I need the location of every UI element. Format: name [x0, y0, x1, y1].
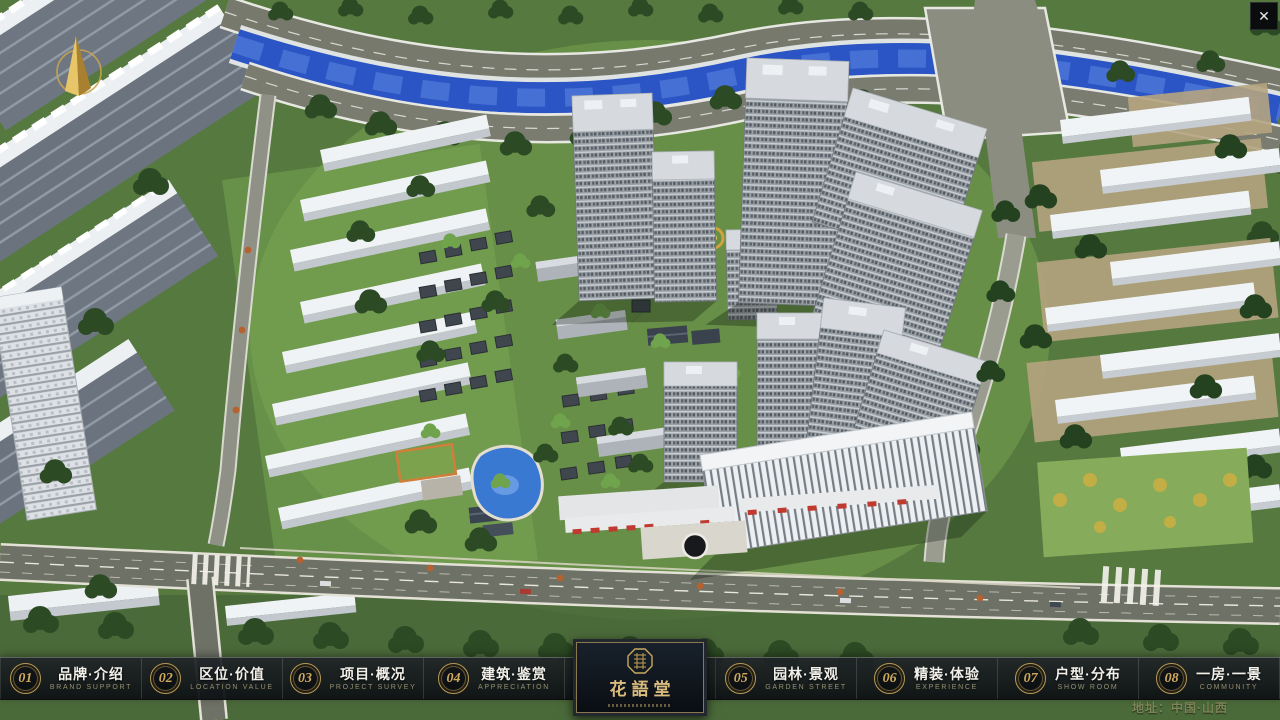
nav-item-floorplan[interactable]: 07 户型·分布 SHOW ROOM: [998, 658, 1139, 699]
nav-item-garden[interactable]: 05 园林·景观 GARDEN STREET: [715, 658, 857, 699]
project-name: 花語堂: [605, 675, 676, 700]
item-number-badge: 03: [290, 663, 321, 694]
close-button[interactable]: ✕: [1250, 2, 1278, 30]
nav-left-group: 01 品牌·介绍 BRAND SUPPORT 02 区位·价值 LOCATION…: [0, 658, 565, 699]
nav-item-label: 一房·一景: [1196, 667, 1262, 681]
masterplan-3d-viewport[interactable]: [0, 0, 1280, 720]
nav-item-label: 区位·价值: [199, 667, 265, 681]
project-logo-plaque[interactable]: 花語堂: [573, 639, 707, 716]
nav-item-label: 品牌·介绍: [58, 667, 124, 681]
logo-tagline: [608, 704, 672, 707]
nav-item-views[interactable]: 08 一房·一景 COMMUNITY: [1139, 658, 1280, 699]
nav-item-subtitle: PROJECT SURVEY: [330, 684, 417, 691]
entrance-plaza: [683, 534, 707, 558]
nav-item-subtitle: GARDEN STREET: [765, 684, 847, 691]
item-number-badge: 05: [725, 663, 756, 694]
item-number-badge: 08: [1156, 663, 1187, 694]
nav-item-label: 建筑·鉴赏: [481, 667, 547, 681]
nav-item-interior[interactable]: 06 精装·体验 EXPERIENCE: [857, 658, 998, 699]
nav-item-subtitle: SHOW ROOM: [1058, 684, 1119, 691]
nav-item-subtitle: APPRECIATION: [478, 684, 550, 691]
nav-item-subtitle: LOCATION VALUE: [190, 684, 273, 691]
nav-item-architecture[interactable]: 04 建筑·鉴赏 APPRECIATION: [424, 658, 565, 699]
item-number-badge: 01: [10, 663, 41, 694]
item-number-badge: 02: [150, 663, 181, 694]
nav-item-label: 精装·体验: [914, 667, 980, 681]
nav-right-group: 05 园林·景观 GARDEN STREET 06 精装·体验 EXPERIEN…: [715, 658, 1280, 699]
nav-item-subtitle: BRAND SUPPORT: [50, 684, 132, 691]
item-number-badge: 07: [1015, 663, 1046, 694]
project-address: 地址：中国·山西: [1132, 699, 1228, 716]
nav-item-brand[interactable]: 01 品牌·介绍 BRAND SUPPORT: [0, 658, 142, 699]
logo-seal-icon: [627, 648, 653, 674]
presentation-window: ✕ 01 品牌·介绍 BRAND SUPPORT 02 区位·价值 LOCATI…: [0, 0, 1280, 720]
nav-item-location[interactable]: 02 区位·价值 LOCATION VALUE: [142, 658, 283, 699]
item-number-badge: 04: [438, 663, 469, 694]
nav-item-label: 项目·概况: [340, 667, 406, 681]
nav-item-subtitle: COMMUNITY: [1200, 684, 1258, 691]
nav-item-label: 户型·分布: [1055, 667, 1121, 681]
nav-item-label: 园林·景观: [773, 667, 839, 681]
nav-item-subtitle: EXPERIENCE: [916, 684, 978, 691]
nav-item-project[interactable]: 03 项目·概况 PROJECT SURVEY: [283, 658, 424, 699]
item-number-badge: 06: [874, 663, 905, 694]
